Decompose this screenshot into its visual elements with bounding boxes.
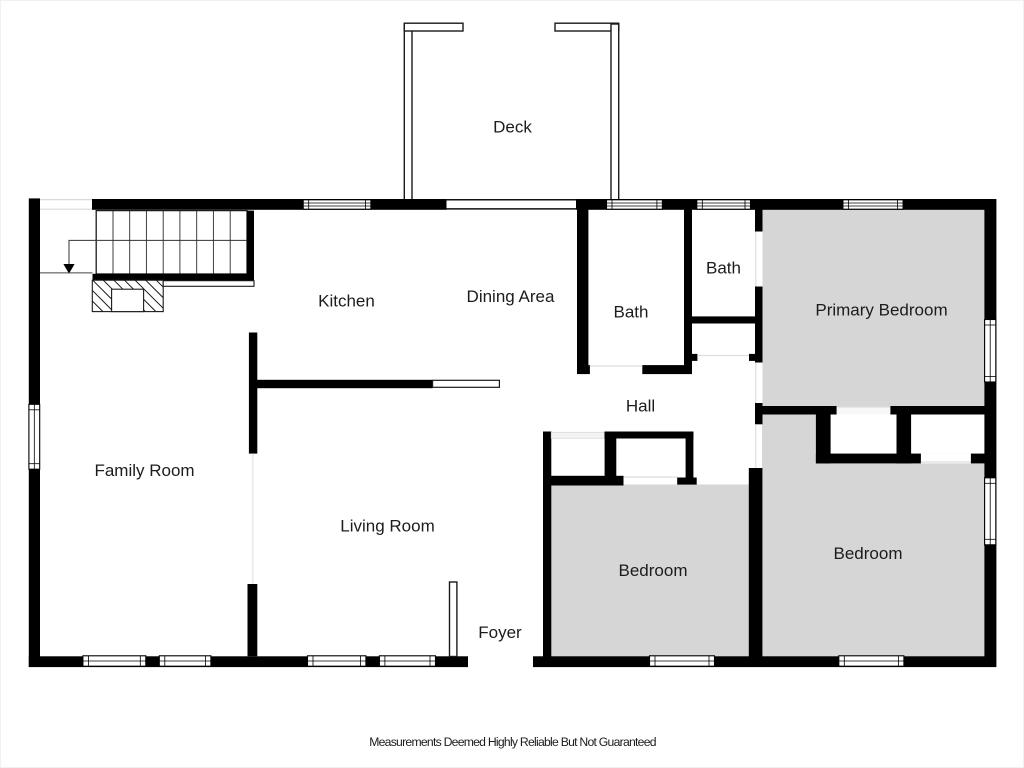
svg-text:Hall: Hall [626,396,655,415]
svg-text:Dining Area: Dining Area [467,287,555,306]
svg-text:Foyer: Foyer [478,623,522,642]
svg-text:Deck: Deck [493,118,532,137]
svg-text:Bath: Bath [706,259,741,278]
svg-text:Primary Bedroom: Primary Bedroom [815,301,947,320]
svg-text:Bedroom: Bedroom [619,561,688,580]
svg-text:Measurements Deemed Highly Rel: Measurements Deemed Highly Reliable But … [369,735,656,749]
svg-text:Family Room: Family Room [94,461,194,480]
svg-text:Bedroom: Bedroom [834,544,903,563]
svg-text:Kitchen: Kitchen [318,292,375,311]
svg-text:Living Room: Living Room [340,516,435,535]
svg-text:Bath: Bath [614,303,649,322]
